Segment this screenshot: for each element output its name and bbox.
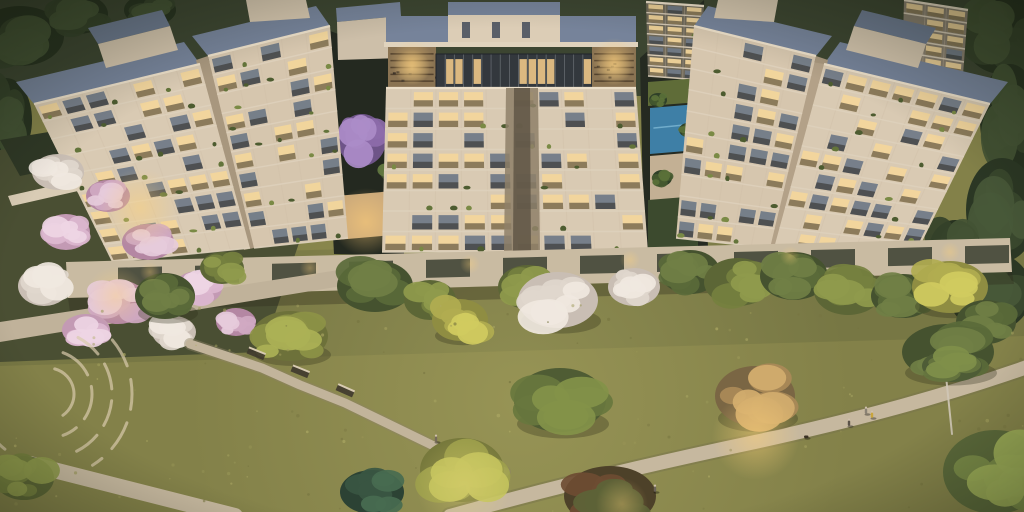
scene-svg xyxy=(0,0,1024,512)
dusk-vignette xyxy=(0,0,1024,512)
aerial-dusk-rendering xyxy=(0,0,1024,512)
